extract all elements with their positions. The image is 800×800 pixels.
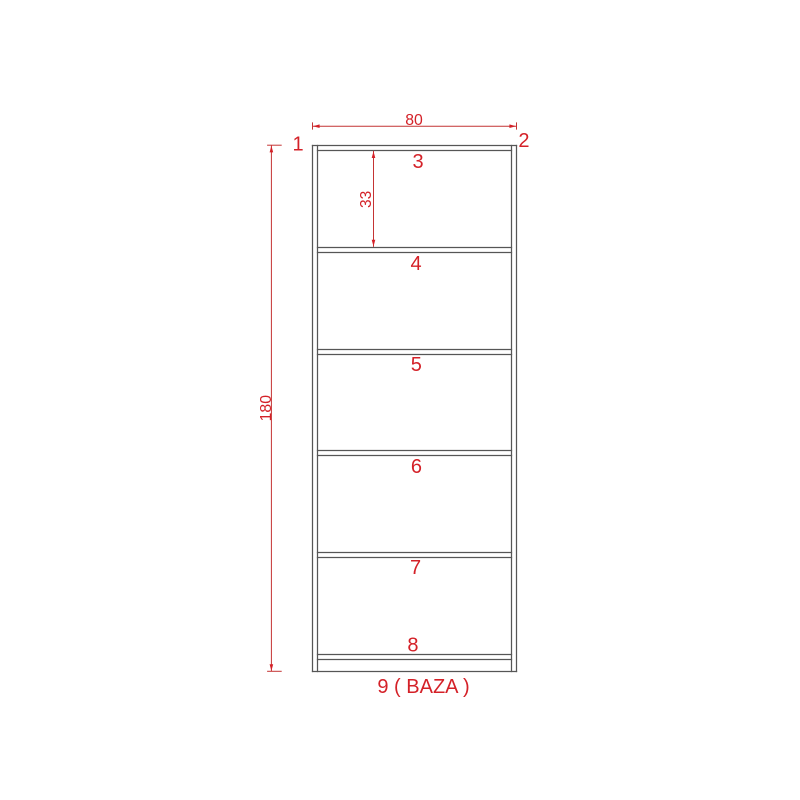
svg-text:5: 5	[411, 354, 422, 376]
svg-text:1: 1	[293, 134, 304, 156]
svg-text:180: 180	[258, 395, 275, 422]
svg-text:4: 4	[411, 253, 422, 275]
svg-text:80: 80	[405, 112, 423, 129]
svg-text:9 ( BAZA ): 9 ( BAZA )	[377, 676, 469, 698]
svg-text:8: 8	[407, 635, 418, 657]
svg-text:2: 2	[518, 130, 529, 152]
svg-text:3: 3	[413, 151, 424, 173]
svg-text:6: 6	[411, 456, 422, 478]
svg-text:33: 33	[358, 191, 375, 208]
svg-text:7: 7	[410, 557, 421, 579]
